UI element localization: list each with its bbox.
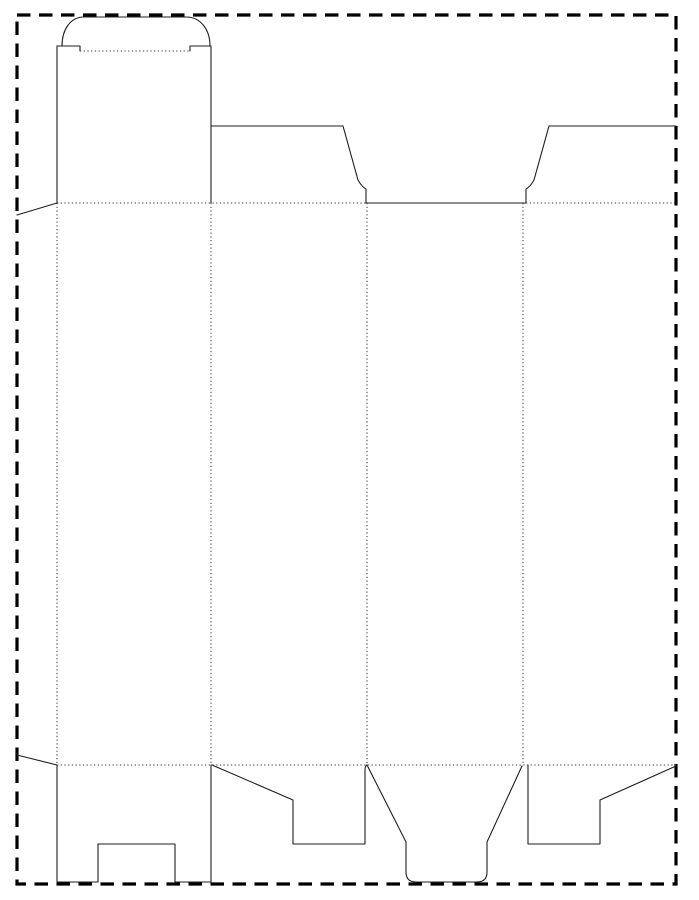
panel4-bottom-flap — [528, 765, 676, 844]
panel2-top-flap — [211, 126, 366, 203]
tuck-shoulder-right — [190, 46, 211, 51]
panel1-bottom-notch — [98, 844, 175, 882]
panel3-bottom-lock — [367, 765, 522, 882]
fold-lines-group — [57, 51, 676, 765]
glue-flap-top-cut — [17, 203, 57, 215]
panel4-top-flap — [526, 126, 676, 203]
tuck-lid-dome — [62, 17, 210, 46]
cut-lines-group — [17, 17, 676, 882]
panel2-bottom-flap — [212, 765, 367, 844]
tuck-shoulder-left — [57, 46, 80, 51]
sheet-border — [17, 15, 676, 884]
sheet-border-group — [17, 15, 676, 884]
glue-flap-bottom-cut — [17, 755, 57, 765]
dieline-page — [0, 0, 699, 900]
carton-dieline-drawing — [0, 0, 699, 900]
